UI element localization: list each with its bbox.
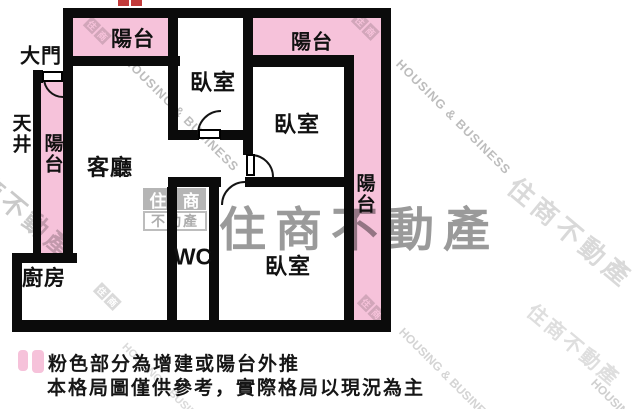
annotation-main-door: 大門 [20, 40, 62, 69]
room-label-balcony-top-left: 陽台 [111, 23, 155, 53]
bedroom2-door-leaf [247, 155, 254, 175]
room-label-bedroom-2: 臥室 [274, 107, 320, 139]
door-arcs-layer [0, 0, 640, 409]
main-door-leaf [43, 72, 62, 81]
room-label-balcony-left: 陽台 [39, 133, 66, 175]
bedroom1-door-leaf [199, 130, 220, 138]
room-label-kitchen: 廚房 [22, 262, 66, 292]
room-label-balcony-top-right: 陽台 [291, 26, 333, 55]
bedroom3-door-arc [222, 182, 245, 205]
room-label-balcony-right: 陽台 [351, 173, 378, 215]
legend-pink-swatch-1 [18, 350, 28, 371]
legend-text-line1: 粉色部分為增建或陽台外推 [48, 349, 300, 376]
annotation-light-well: 天井 [7, 113, 34, 155]
legend-text-line2: 本格局圖僅供參考，實際格局以現況為主 [47, 373, 425, 400]
room-label-wc: WC [174, 244, 212, 271]
floor-plan-image: 住商不動產 住 商 不動產 HOUSING & BUSINESS HOUSING… [0, 0, 640, 409]
brand-mark-red-cropped [131, 0, 142, 6]
room-label-living-room: 客廳 [87, 150, 133, 182]
brand-mark-red-cropped [118, 0, 129, 6]
room-label-bedroom-3: 臥室 [265, 249, 311, 281]
legend-pink-swatch-2 [32, 350, 44, 373]
room-label-bedroom-1: 臥室 [190, 65, 236, 97]
